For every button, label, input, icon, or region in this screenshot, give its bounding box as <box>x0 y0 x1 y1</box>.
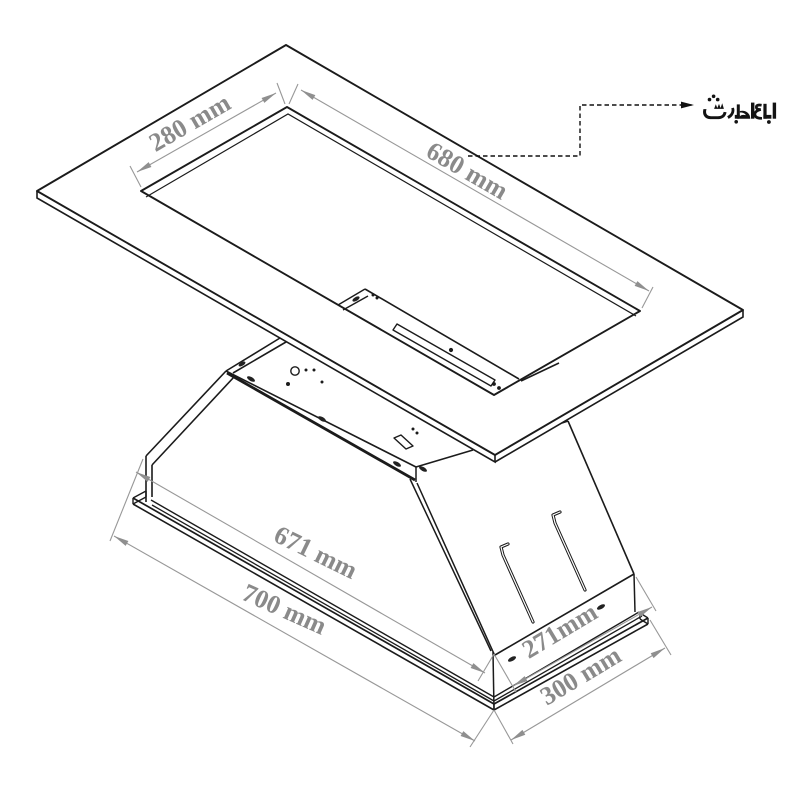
svg-text:680 mm: 680 mm <box>422 136 514 206</box>
svg-text:700 mm: 700 mm <box>238 578 331 641</box>
svg-text:280 mm: 280 mm <box>144 88 236 158</box>
